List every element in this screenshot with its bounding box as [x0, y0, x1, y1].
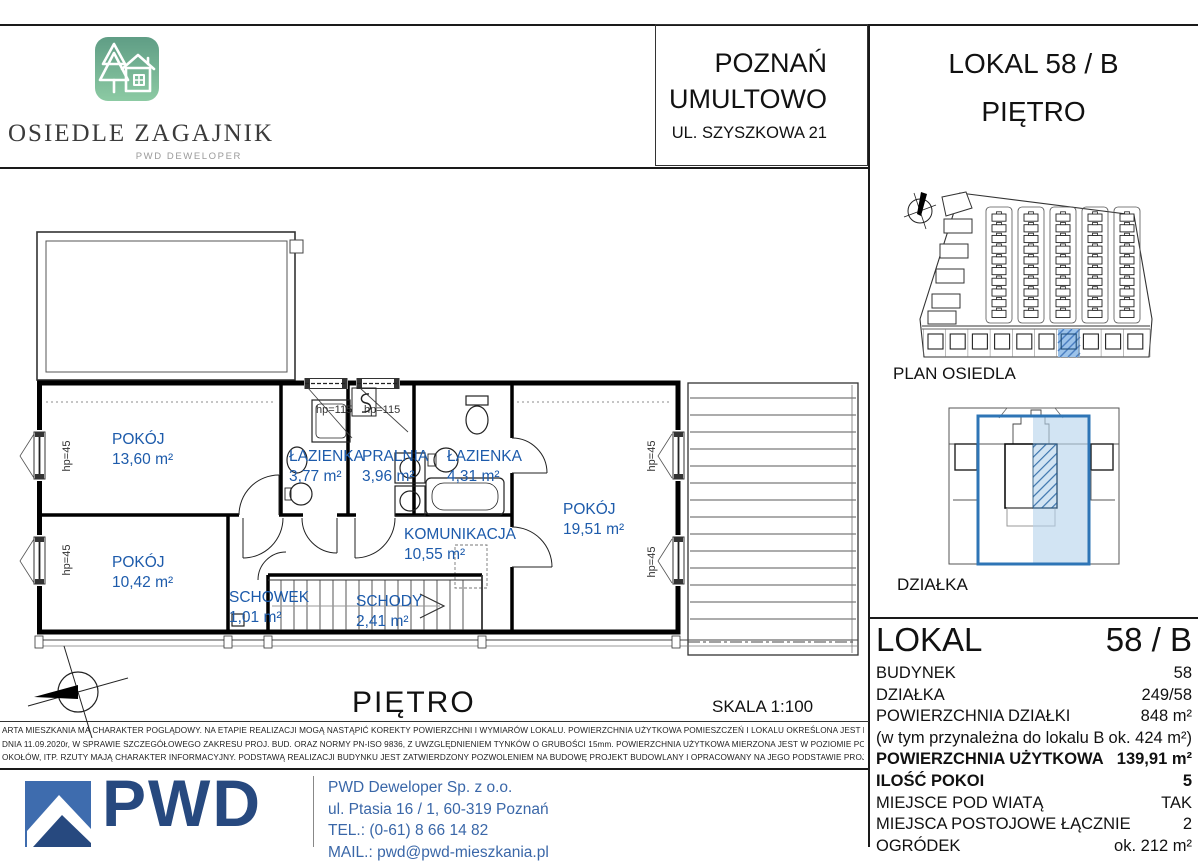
window-height-label: hp=45	[646, 441, 658, 472]
disclaimer-text: ARTA MIESZKANIA MA CHARAKTER POGLĄDOWY. …	[2, 724, 864, 765]
company-address: ul. Ptasia 16 / 1, 60-319 Poznań	[328, 799, 549, 821]
room-label-lazienka-2: ŁAZIENKA 4,31 m²	[447, 447, 522, 487]
window-height-label: hp=45	[61, 545, 73, 576]
unit-floor: PIĘTRO	[869, 88, 1198, 136]
site-compass-icon	[904, 192, 936, 229]
disclaimer-line-2: DNIA 11.09.2020r, W SPRAWIE SZCZEGÓŁOWEG…	[2, 738, 864, 752]
brand-logo-icon	[95, 37, 159, 101]
location-box: POZNAŃ UMULTOWO UL. SZYSZKOWA 21	[655, 24, 868, 166]
disclaimer-line-3: OKOŁÓW, ITP. RZUTY MAJĄ CHARAKTER INFORM…	[2, 751, 864, 765]
floor-plan-drawing	[0, 170, 870, 770]
room-label-komunikacja: KOMUNIKACJA 10,55 m²	[404, 525, 516, 565]
table-row-budynek: BUDYNEK58	[876, 663, 1192, 685]
window-height-label: hp=45	[61, 441, 73, 472]
pwd-logo-text: PWD	[102, 768, 262, 838]
table-top-rule	[869, 617, 1198, 619]
company-name: PWD Deweloper Sp. z o.o.	[328, 777, 549, 799]
location-city: POZNAŃ	[714, 48, 827, 78]
unit-table: LOKAL 58 / B BUDYNEK58 DZIAŁKA249/58 POW…	[876, 620, 1192, 857]
apartment-card-page: { "header": { "brand": { "name": "OSIEDL…	[0, 0, 1198, 847]
window-height-label: hp=45	[646, 547, 658, 578]
location-street: UL. SZYSZKOWA 21	[672, 124, 827, 143]
table-row-wiata: MIEJSCE POD WIATĄTAK	[876, 793, 1192, 815]
company-email: MAIL.: pwd@pwd-mieszkania.pl	[328, 842, 549, 863]
unit-number: LOKAL 58 / B	[869, 40, 1198, 88]
pwd-logo-icon	[25, 781, 91, 847]
unit-header: LOKAL 58 / B PIĘTRO	[869, 40, 1198, 136]
window-height-label: hp=115	[364, 404, 400, 416]
table-row-przynalezna: (w tym przynależna do lokalu Bok. 424 m²…	[876, 728, 1192, 750]
unit-table-title: LOKAL 58 / B	[876, 620, 1192, 660]
site-plan-drawing	[880, 185, 1180, 385]
table-row-powierzchnia-dzialki: POWIERZCHNIA DZIAŁKI848 m²	[876, 706, 1192, 728]
table-row-powierzchnia-uzytkowa: POWIERZCHNIA UŻYTKOWA139,91 m²	[876, 749, 1192, 771]
brand-subtitle: PWD DEWELOPER	[8, 151, 242, 162]
table-row-postojowe: MIEJSCA POSTOJOWE ŁĄCZNIE2	[876, 814, 1192, 836]
company-phone: TEL.: (0-61) 8 66 14 82	[328, 820, 549, 842]
plot-label: DZIAŁKA	[897, 575, 968, 595]
table-row-ilosc-pokoi: ILOŚĆ POKOI5	[876, 771, 1192, 793]
table-row-dzialka: DZIAŁKA249/58	[876, 685, 1192, 707]
room-label-pokoj-1: POKÓJ 13,60 m²	[112, 430, 173, 470]
room-label-pokoj-2: POKÓJ 10,42 m²	[112, 553, 173, 593]
disclaimer-line-1: ARTA MIESZKANIA MA CHARAKTER POGLĄDOWY. …	[2, 724, 864, 738]
room-label-pokoj-3: POKÓJ 19,51 m²	[563, 500, 624, 540]
footer-divider	[313, 776, 314, 847]
top-rule	[0, 24, 1198, 26]
plot-drawing	[945, 396, 1140, 571]
header-rule	[0, 167, 869, 169]
room-label-lazienka-1: ŁAZIENKA 3,77 m²	[289, 447, 364, 487]
footer-contact: PWD Deweloper Sp. z o.o. ul. Ptasia 16 /…	[328, 777, 549, 863]
location-district: UMULTOWO	[669, 84, 827, 114]
room-label-schowek: SCHOWEK 1,01 m²	[229, 588, 309, 628]
window-height-label: hp=115	[316, 404, 352, 416]
plan-title: PIĘTRO	[352, 686, 476, 720]
room-label-pralnia: PRALNIA 3,96 m²	[362, 447, 428, 487]
brand-name: OSIEDLE ZAGAJNIK	[8, 120, 248, 148]
plan-scale: SKALA 1:100	[712, 697, 813, 717]
room-label-schody: SCHODY 2,41 m²	[356, 592, 422, 632]
site-plan-label: PLAN OSIEDLA	[893, 364, 1016, 384]
